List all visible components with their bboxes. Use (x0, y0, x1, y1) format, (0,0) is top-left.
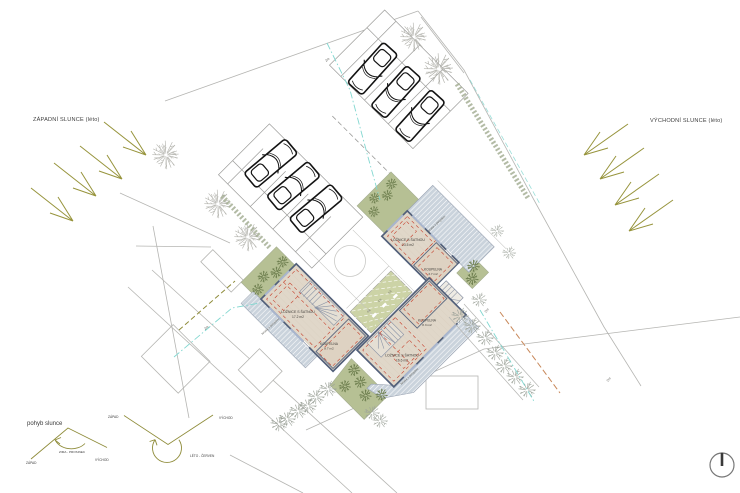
svg-text:3.7 m2: 3.7 m2 (428, 272, 438, 276)
svg-text:16.6 m2: 16.6 m2 (396, 359, 408, 363)
svg-text:LÉTO - ČERVEN: LÉTO - ČERVEN (190, 453, 215, 458)
svg-text:LOŽNICE S ŠATNOU: LOŽNICE S ŠATNOU (391, 237, 425, 242)
svg-text:13.5 m2: 13.5 m2 (402, 243, 414, 247)
svg-text:LOŽNICE S ŠATNOU: LOŽNICE S ŠATNOU (385, 353, 419, 358)
svg-text:pohyb slunce: pohyb slunce (27, 421, 63, 427)
svg-text:8.3 m2: 8.3 m2 (422, 323, 432, 327)
svg-text:ZÁPAD: ZÁPAD (108, 415, 119, 419)
svg-text:17.2 m2: 17.2 m2 (292, 315, 304, 319)
svg-text:KOUPELNA: KOUPELNA (320, 342, 339, 346)
svg-text:ZÁPAD: ZÁPAD (26, 461, 37, 465)
svg-text:VÝCHODNÍ SLUNCE (léto): VÝCHODNÍ SLUNCE (léto) (650, 117, 722, 124)
svg-text:ZÁPADNÍ SLUNCE (léto): ZÁPADNÍ SLUNCE (léto) (33, 116, 100, 123)
svg-text:KOUPELNA: KOUPELNA (418, 319, 437, 323)
svg-text:8.7 m2: 8.7 m2 (324, 347, 334, 351)
svg-text:VÝCHOD: VÝCHOD (95, 458, 109, 462)
svg-text:LOŽNICE S ŠATNOU: LOŽNICE S ŠATNOU (281, 309, 315, 314)
svg-text:VÝCHOD: VÝCHOD (219, 416, 233, 420)
svg-text:KOUPELNA: KOUPELNA (424, 268, 443, 272)
svg-text:ZIMA - PROSINEC: ZIMA - PROSINEC (59, 450, 86, 454)
